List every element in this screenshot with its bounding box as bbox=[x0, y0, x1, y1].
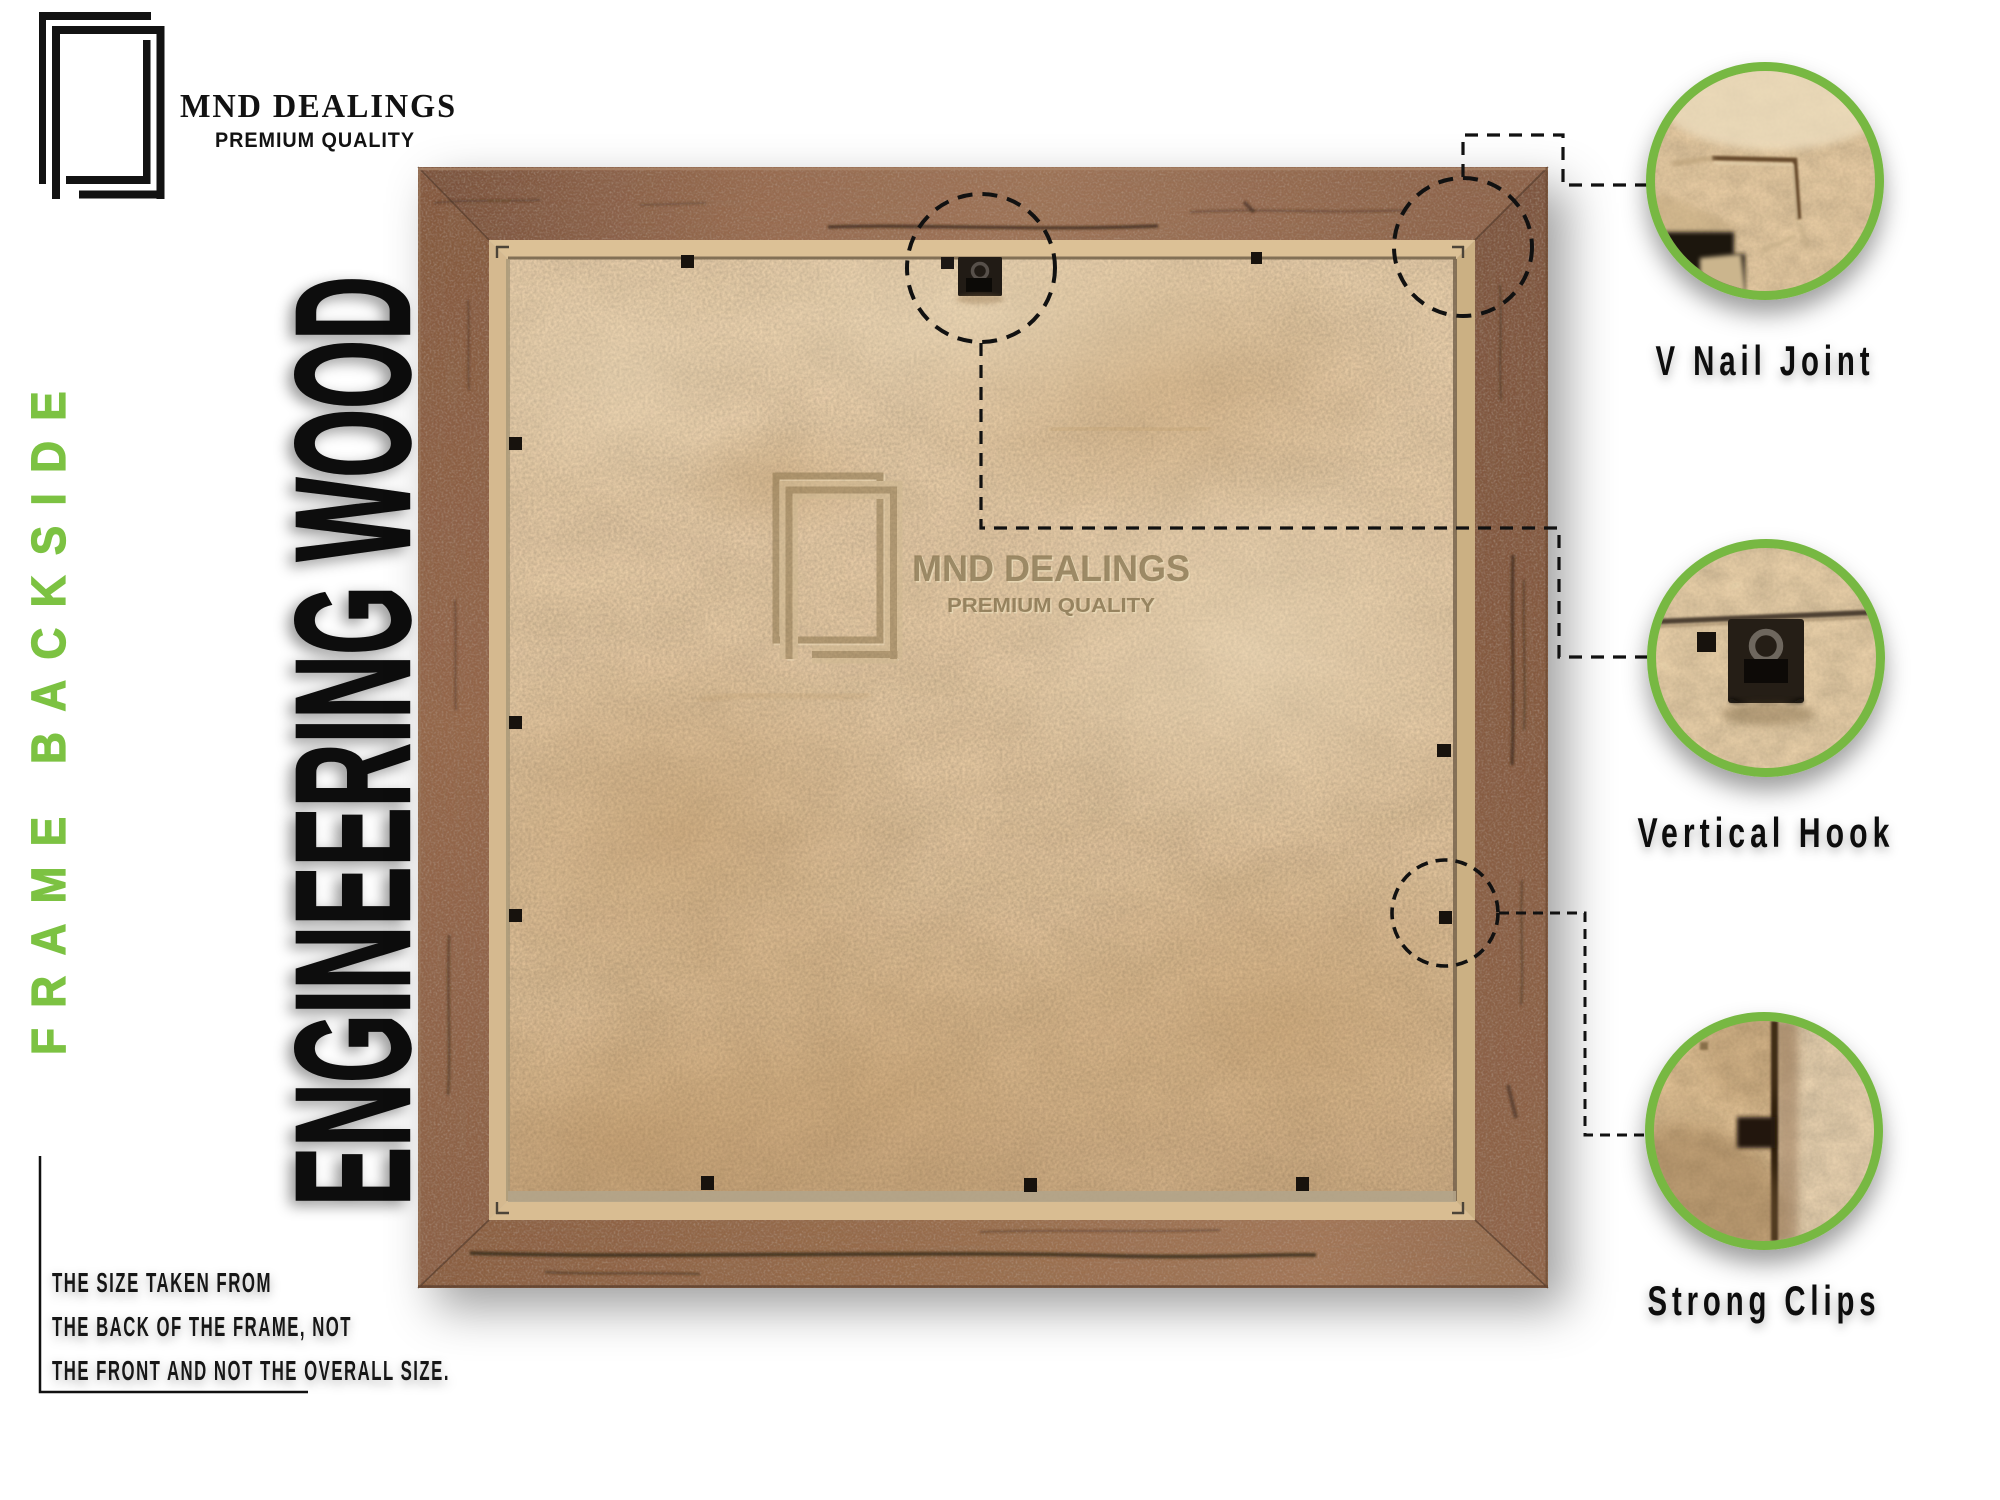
svg-text:MND DEALINGS: MND DEALINGS bbox=[180, 88, 457, 125]
svg-text:PREMIUM QUALITY: PREMIUM QUALITY bbox=[947, 595, 1156, 617]
svg-text:PREMIUM QUALITY: PREMIUM QUALITY bbox=[215, 129, 415, 152]
svg-text:Strong Clips: Strong Clips bbox=[1648, 1277, 1881, 1324]
svg-text:MND DEALINGS: MND DEALINGS bbox=[912, 548, 1190, 589]
svg-text:ENGINEERING WOOD: ENGINEERING WOOD bbox=[261, 276, 444, 1206]
svg-text:V Nail Joint: V Nail Joint bbox=[1656, 337, 1875, 384]
svg-text:Vertical Hook: Vertical Hook bbox=[1638, 809, 1895, 856]
svg-text:THE SIZE TAKEN FROM: THE SIZE TAKEN FROM bbox=[52, 1267, 272, 1298]
svg-text:THE BACK OF THE FRAME, NOT: THE BACK OF THE FRAME, NOT bbox=[52, 1311, 352, 1342]
svg-text:THE FRONT AND NOT THE OVERALL: THE FRONT AND NOT THE OVERALL SIZE. bbox=[52, 1355, 450, 1386]
svg-text:FRAME BACKSIDE: FRAME BACKSIDE bbox=[23, 371, 76, 1055]
